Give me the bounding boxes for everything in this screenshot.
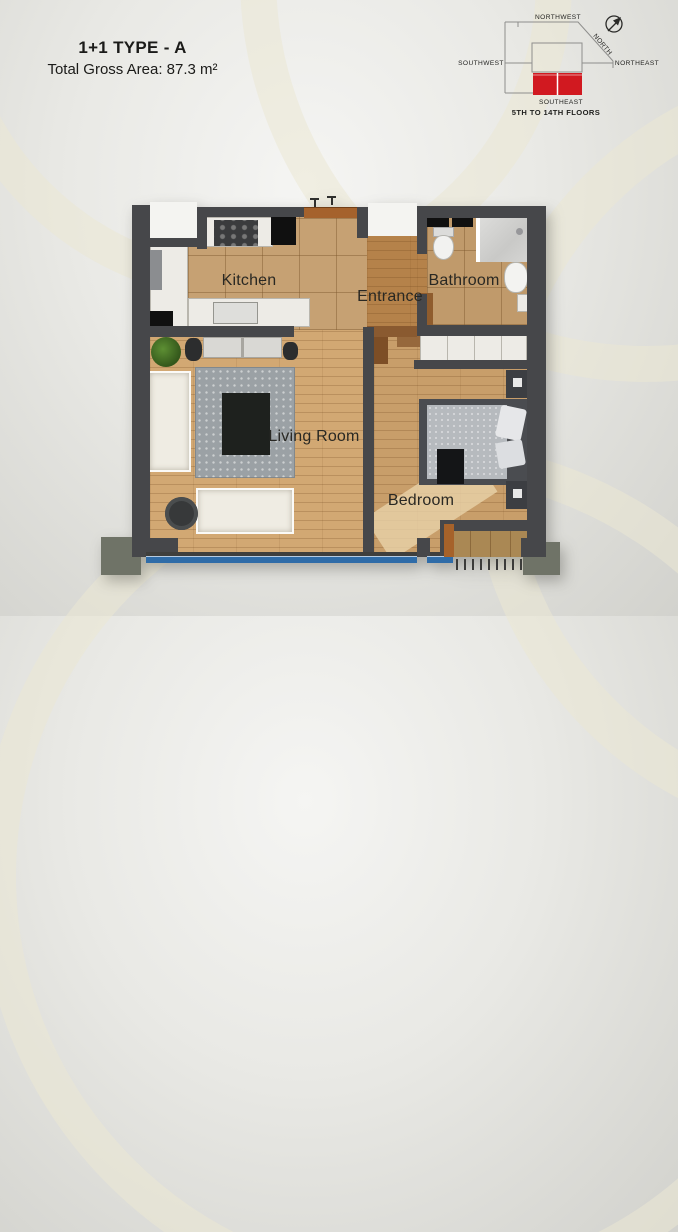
window-glass-bedroom <box>427 556 453 563</box>
speaker-right <box>283 342 298 360</box>
wall-right <box>527 206 546 557</box>
shower-drain <box>516 228 523 235</box>
kitchen-wall-niche <box>150 250 162 290</box>
kitchen-appliance <box>150 311 173 327</box>
tv-sideboard <box>203 337 282 358</box>
kitchen-oven <box>271 214 296 245</box>
window-glass-main <box>146 556 417 563</box>
door-hinge-mark <box>310 198 319 207</box>
wall-stub <box>357 207 368 238</box>
bed-blanket <box>437 449 464 484</box>
wall-top-kitchen <box>197 207 307 217</box>
sofa-bottom <box>196 488 294 534</box>
exterior-notch-left <box>150 202 197 238</box>
front-door <box>304 207 357 218</box>
cooktop <box>214 220 258 246</box>
wall-top-bathroom <box>417 206 545 218</box>
balcony-floor <box>450 531 527 557</box>
sofa-left <box>148 371 191 472</box>
wall-left <box>132 205 150 545</box>
room-label-entrance: Entrance <box>320 288 460 306</box>
entrance-step <box>367 326 417 337</box>
bed-pillow <box>495 439 526 469</box>
room-label-kitchen: Kitchen <box>179 272 319 290</box>
armchair-round <box>165 497 198 530</box>
balcony-door-leaf <box>444 524 454 557</box>
shower <box>476 213 531 262</box>
balcony-railing <box>456 559 524 570</box>
exterior-notch-entry <box>368 203 417 236</box>
nightstand-knob <box>513 489 522 498</box>
wall-bathroom-left-upper <box>417 206 427 254</box>
wall-bottom-right-corner <box>521 538 546 557</box>
room-label-living-room: Living Room <box>244 428 384 446</box>
room-label-bedroom: Bedroom <box>351 492 491 510</box>
room-label-bathroom: Bathroom <box>394 272 534 290</box>
door-hinge-mark <box>327 196 336 205</box>
kitchen-sink <box>213 302 258 324</box>
wall-kitchen-bottom <box>146 326 294 337</box>
nightstand-knob <box>513 378 522 387</box>
wall-notch <box>143 238 200 247</box>
wall-bathroom-bottom <box>417 325 545 336</box>
speaker-left <box>185 338 202 361</box>
floor-plan: Kitchen Entrance Bathroom Living Room Be… <box>0 0 678 616</box>
window-mullion <box>417 538 430 557</box>
plant <box>151 337 181 367</box>
bedroom-door-leaf <box>374 333 388 364</box>
wardrobe <box>420 334 527 361</box>
wall-closet-bottom <box>414 360 534 369</box>
toilet <box>433 235 454 260</box>
